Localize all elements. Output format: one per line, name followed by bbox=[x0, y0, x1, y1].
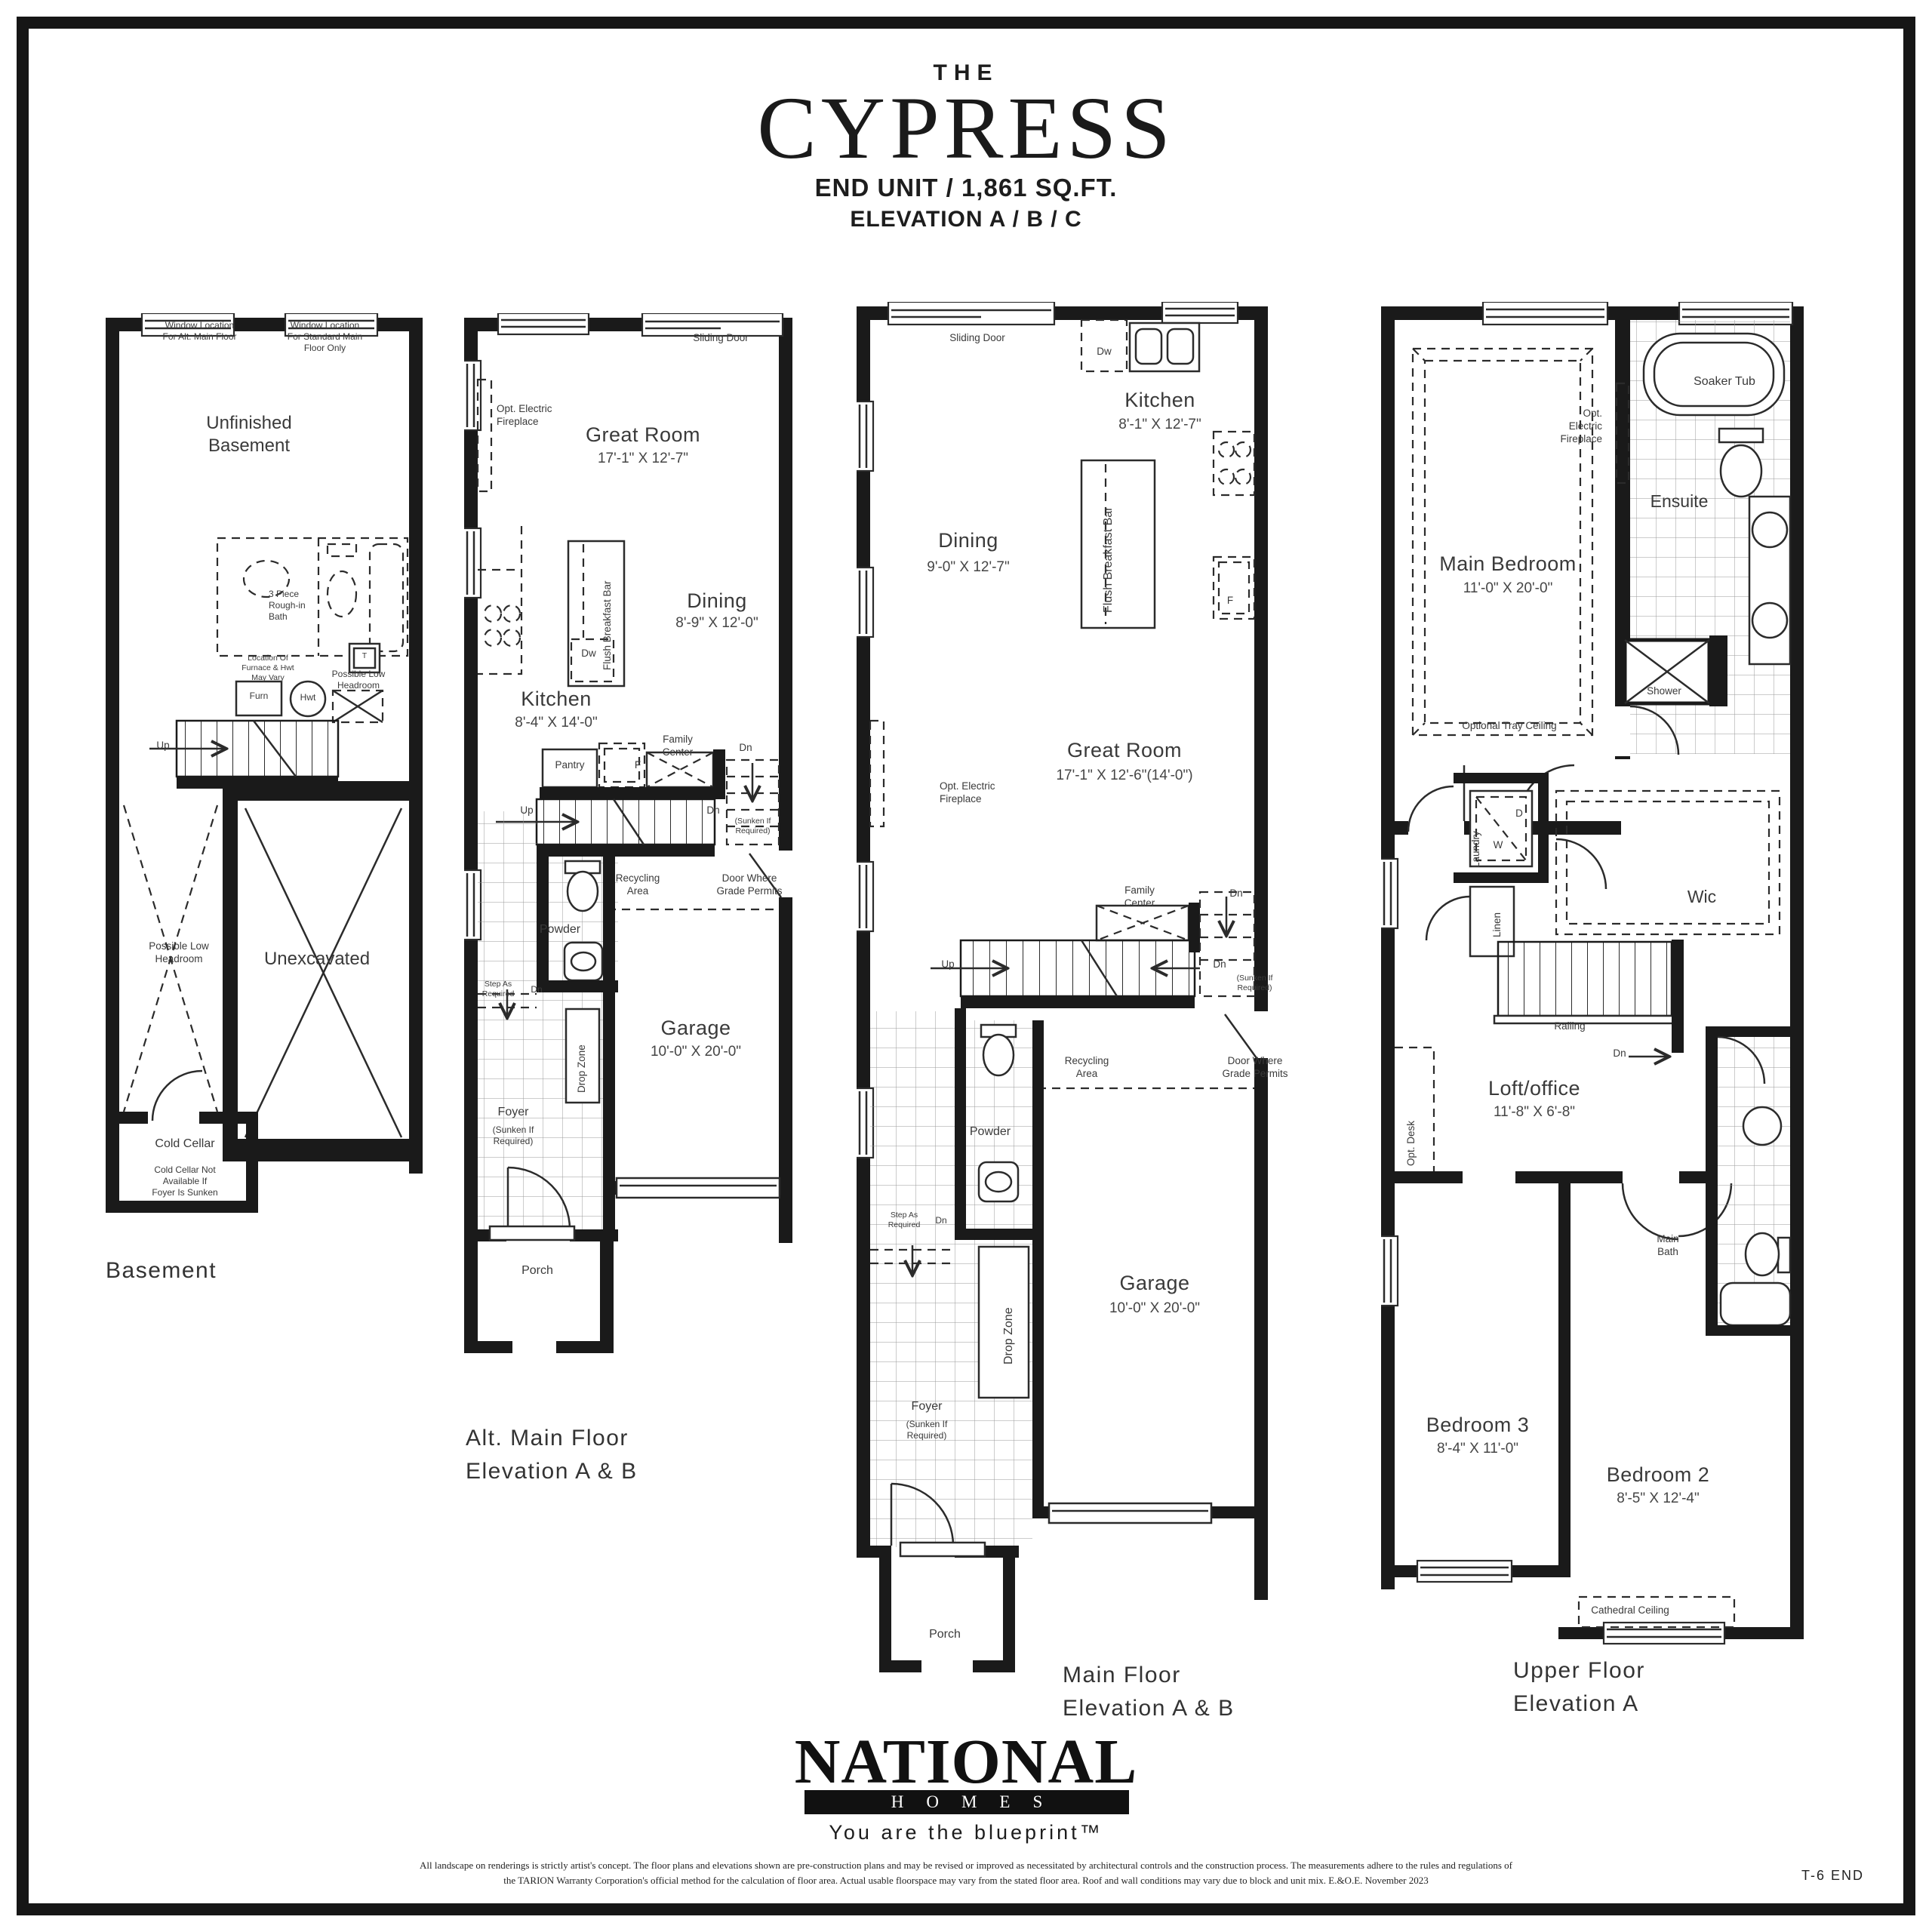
logo-homes-text: HOMES bbox=[869, 1792, 1066, 1812]
sunken-note: (Sunken If Required) bbox=[1223, 974, 1287, 993]
page-title: CYPRESS bbox=[664, 72, 1268, 184]
sliding-door-label: Sliding Door bbox=[917, 332, 1038, 345]
breakfast-bar-label: Flush Breakfast Bar bbox=[1102, 507, 1115, 614]
room-label-powder: Powder bbox=[522, 922, 598, 937]
room-label-cold-cellar: Cold Cellar bbox=[125, 1137, 245, 1152]
railing-label: Railing bbox=[1521, 1020, 1619, 1033]
room-label-main-bedroom: Main Bedroom bbox=[1417, 552, 1598, 577]
plan-label-alt-main: Alt. Main Floor Elevation A & B bbox=[466, 1422, 768, 1487]
hwt-label: Hwt bbox=[285, 692, 331, 703]
up-label: Up bbox=[512, 804, 542, 817]
room-label-foyer: Foyer bbox=[881, 1399, 972, 1414]
sliding-door-icon bbox=[888, 302, 1054, 325]
hall-bedroom-walls bbox=[1395, 1171, 1731, 1577]
drop-zone-label: Drop Zone bbox=[576, 1044, 587, 1093]
room-label-foyer: Foyer bbox=[468, 1105, 558, 1120]
dn-label-entry: Dn bbox=[1221, 888, 1251, 900]
recycling-label: Recycling Area bbox=[592, 872, 683, 898]
foyer-sunken-note: (Sunken If Required) bbox=[464, 1124, 562, 1147]
room-label-porch: Porch bbox=[900, 1627, 990, 1642]
room-dims-great-room: 17'-1" X 12'-7" bbox=[568, 450, 718, 468]
sliding-door-label: Sliding Door bbox=[660, 332, 781, 345]
room-dims-bedroom3: 8'-4" X 11'-0" bbox=[1387, 1440, 1568, 1458]
room-label-unexcavated: Unexcavated bbox=[241, 948, 392, 971]
dryer-label: D bbox=[1509, 808, 1529, 820]
porch-walls bbox=[464, 1226, 614, 1353]
kitchen-counter-icon bbox=[478, 526, 521, 674]
dn-label-stairs: Dn bbox=[698, 804, 728, 817]
unexcavated-area bbox=[223, 781, 423, 1161]
drop-zone-label: Drop Zone bbox=[1002, 1307, 1016, 1364]
room-dims-loft: 11'-8" X 6'-8" bbox=[1444, 1103, 1625, 1121]
brochure-page: THE CYPRESS END UNIT / 1,861 SQ.FT. ELEV… bbox=[0, 0, 1932, 1932]
dw-label: Dw bbox=[570, 648, 608, 660]
room-dims-garage: 10'-0" X 20'-0" bbox=[628, 1043, 764, 1061]
room-label-great-room: Great Room bbox=[1034, 738, 1215, 764]
stairs-dn-icon bbox=[1494, 940, 1684, 1057]
logo-homes-bar: HOMES bbox=[804, 1790, 1129, 1814]
tray-ceiling-label: Optional Tray Ceiling bbox=[1426, 720, 1592, 733]
plan-label-basement: Basement bbox=[106, 1254, 332, 1287]
room-dims-kitchen: 8'-1" X 12'-7" bbox=[1092, 416, 1228, 434]
room-label-dining: Dining bbox=[908, 528, 1029, 554]
room-label-powder: Powder bbox=[952, 1124, 1028, 1140]
dn-label-stairs: Dn bbox=[1204, 958, 1235, 971]
room-dims-bedroom2: 8'-5" X 12'-4" bbox=[1567, 1490, 1749, 1508]
family-center-label: Family Center bbox=[632, 734, 723, 759]
dn-label-entry: Dn bbox=[731, 742, 761, 755]
room-label-main-bath: Main Bath bbox=[1630, 1233, 1706, 1259]
washer-label: W bbox=[1488, 839, 1508, 852]
room-label-great-room: Great Room bbox=[568, 423, 718, 448]
room-label-porch: Porch bbox=[492, 1263, 583, 1278]
door-grade-label: Door Where Grade Permits bbox=[1206, 1055, 1304, 1081]
sheet-number: T-6 END bbox=[1736, 1867, 1864, 1884]
room-dims-main-bedroom: 11'-0" X 20'-0" bbox=[1417, 580, 1598, 598]
basement-window-note-std: Window Location For Standard Main Floor … bbox=[263, 320, 387, 354]
shower-label: Shower bbox=[1615, 685, 1713, 698]
room-dims-kitchen: 8'-4" X 14'-0" bbox=[496, 714, 617, 732]
room-label-ensuite: Ensuite bbox=[1623, 491, 1736, 512]
stairs-icon bbox=[931, 940, 1211, 1008]
plan-label-upper: Upper Floor Elevation A bbox=[1513, 1654, 1815, 1720]
disclaimer-line2: the TARION Warranty Corporation's offici… bbox=[377, 1873, 1555, 1888]
room-dims-dining: 8'-9" X 12'-0" bbox=[664, 614, 770, 632]
laundry-label: Laundry bbox=[1470, 831, 1481, 868]
wic-icon bbox=[1556, 791, 1780, 934]
step-required-note: Step As Required bbox=[468, 980, 528, 999]
plan-label-main: Main Floor Elevation A & B bbox=[1063, 1659, 1364, 1724]
fireplace-icon bbox=[870, 721, 884, 826]
room-dims-dining: 9'-0" X 12'-7" bbox=[908, 558, 1029, 577]
room-label-dining: Dining bbox=[664, 589, 770, 614]
fridge-label: F bbox=[626, 759, 649, 772]
opt-desk-label: Opt. Desk bbox=[1405, 1121, 1417, 1166]
dw-label: Dw bbox=[1085, 346, 1123, 358]
room-label-garage: Garage bbox=[1087, 1271, 1223, 1297]
thermostat-label: T bbox=[353, 651, 376, 661]
dn-label-step: Dn bbox=[524, 984, 549, 995]
room-label-bath-rough-in: 3 Piece Rough-in Bath bbox=[269, 589, 352, 623]
furnace-label: Furn bbox=[236, 691, 281, 702]
logo-tagline: You are the blueprint™ bbox=[755, 1820, 1177, 1846]
island-breakfast-bar-icon bbox=[568, 541, 624, 686]
room-label-bedroom3: Bedroom 3 bbox=[1387, 1413, 1568, 1438]
room-label-garage: Garage bbox=[628, 1016, 764, 1041]
family-center-label: Family Center bbox=[1094, 884, 1185, 910]
low-headroom-label-right: Possible Low Headroom bbox=[313, 669, 404, 691]
basement-window-note-alt: Window Location For Alt. Main Floor bbox=[137, 320, 262, 343]
door-grade-label: Door Where Grade Permits bbox=[700, 872, 798, 898]
recycling-label: Recycling Area bbox=[1041, 1055, 1132, 1081]
step-required-note: Step As Required bbox=[874, 1211, 934, 1230]
room-label-kitchen: Kitchen bbox=[1092, 388, 1228, 414]
room-label-loft: Loft/office bbox=[1444, 1076, 1625, 1102]
title-spec: END UNIT / 1,861 SQ.FT. bbox=[740, 172, 1192, 203]
fireplace-label: Opt. Electric Fireplace bbox=[1527, 408, 1602, 446]
bedroom3-walls bbox=[1395, 1561, 1558, 1582]
room-label-wic: Wic bbox=[1664, 886, 1740, 908]
foyer-sunken-note: (Sunken If Required) bbox=[878, 1419, 976, 1441]
sunken-note: (Sunken If Required) bbox=[721, 817, 785, 836]
main-bath-icons bbox=[1706, 1026, 1804, 1336]
island-breakfast-bar-icon bbox=[1081, 460, 1155, 628]
soaker-tub-label: Soaker Tub bbox=[1657, 374, 1792, 389]
low-headroom-label-left: Possible Low Headroom bbox=[134, 940, 224, 966]
up-label: Up bbox=[933, 958, 963, 971]
main-floor-plan-drawing bbox=[857, 302, 1279, 1721]
title-elevation: ELEVATION A / B / C bbox=[740, 205, 1192, 234]
alt-main-floor-plan-drawing bbox=[464, 313, 800, 1362]
fireplace-label: Opt. Electric Fireplace bbox=[940, 780, 1030, 806]
fridge-label: F bbox=[1219, 595, 1241, 608]
room-dims-great-room: 17'-1" X 12'-6"(14'-0") bbox=[1034, 767, 1215, 785]
linen-label: Linen bbox=[1491, 912, 1503, 937]
furnace-note: Location Of Furnace & Hwt May Vary bbox=[223, 654, 313, 683]
room-label-bedroom2: Bedroom 2 bbox=[1567, 1463, 1749, 1488]
up-label: Up bbox=[148, 740, 178, 752]
tray-ceiling-icon bbox=[1413, 349, 1592, 735]
dn-label: Dn bbox=[1604, 1048, 1635, 1060]
room-label-kitchen: Kitchen bbox=[496, 687, 617, 712]
disclaimer-line1: All landscape on renderings is strictly … bbox=[377, 1858, 1555, 1873]
porch-walls bbox=[879, 1543, 1015, 1672]
room-label-unfinished-basement: Unfinished Basement bbox=[174, 412, 325, 457]
dn-label-step: Dn bbox=[928, 1215, 954, 1226]
cathedral-ceiling-label: Cathedral Ceiling bbox=[1555, 1604, 1706, 1617]
pantry-label: Pantry bbox=[540, 759, 600, 772]
cold-cellar-note: Cold Cellar Not Available If Foyer Is Su… bbox=[128, 1164, 241, 1198]
room-dims-garage: 10'-0" X 20'-0" bbox=[1087, 1300, 1223, 1318]
